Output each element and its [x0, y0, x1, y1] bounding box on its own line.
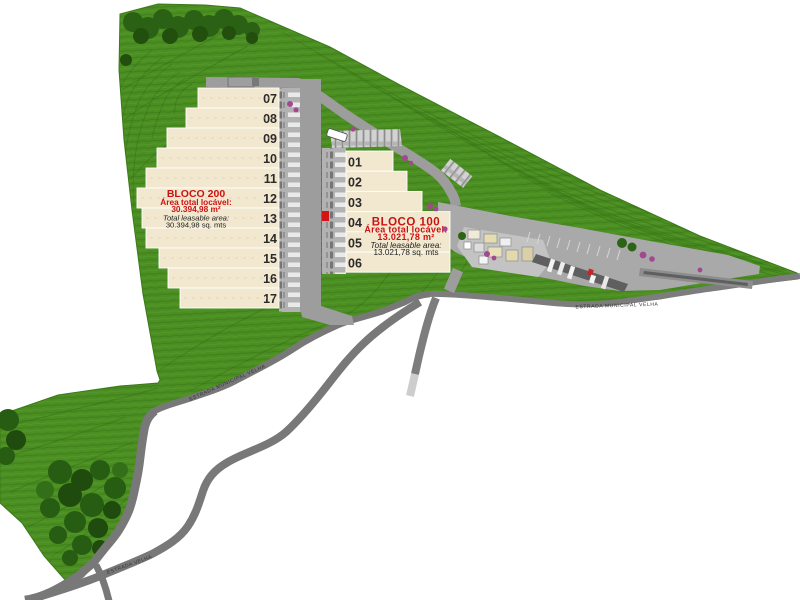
- svg-text:06: 06: [348, 257, 362, 271]
- svg-text:02: 02: [348, 176, 362, 190]
- svg-text:01: 01: [348, 156, 362, 170]
- svg-text:03: 03: [348, 196, 362, 210]
- svg-text:30.394,98 sq. mts: 30.394,98 sq. mts: [166, 221, 227, 230]
- svg-text:10: 10: [263, 152, 277, 166]
- svg-text:11: 11: [264, 172, 277, 186]
- svg-text:04: 04: [348, 216, 362, 230]
- svg-text:08: 08: [263, 112, 277, 126]
- svg-text:17: 17: [263, 292, 277, 306]
- svg-text:13.021,78 sq. mts: 13.021,78 sq. mts: [373, 248, 438, 257]
- svg-text:09: 09: [263, 132, 277, 146]
- svg-text:05: 05: [348, 236, 362, 250]
- svg-text:14: 14: [263, 232, 277, 246]
- svg-text:16: 16: [263, 272, 277, 286]
- svg-text:15: 15: [263, 252, 277, 266]
- svg-text:30.394,98 m²: 30.394,98 m²: [171, 204, 221, 214]
- svg-text:12: 12: [263, 192, 277, 206]
- svg-text:13: 13: [263, 212, 277, 226]
- svg-text:07: 07: [263, 92, 277, 106]
